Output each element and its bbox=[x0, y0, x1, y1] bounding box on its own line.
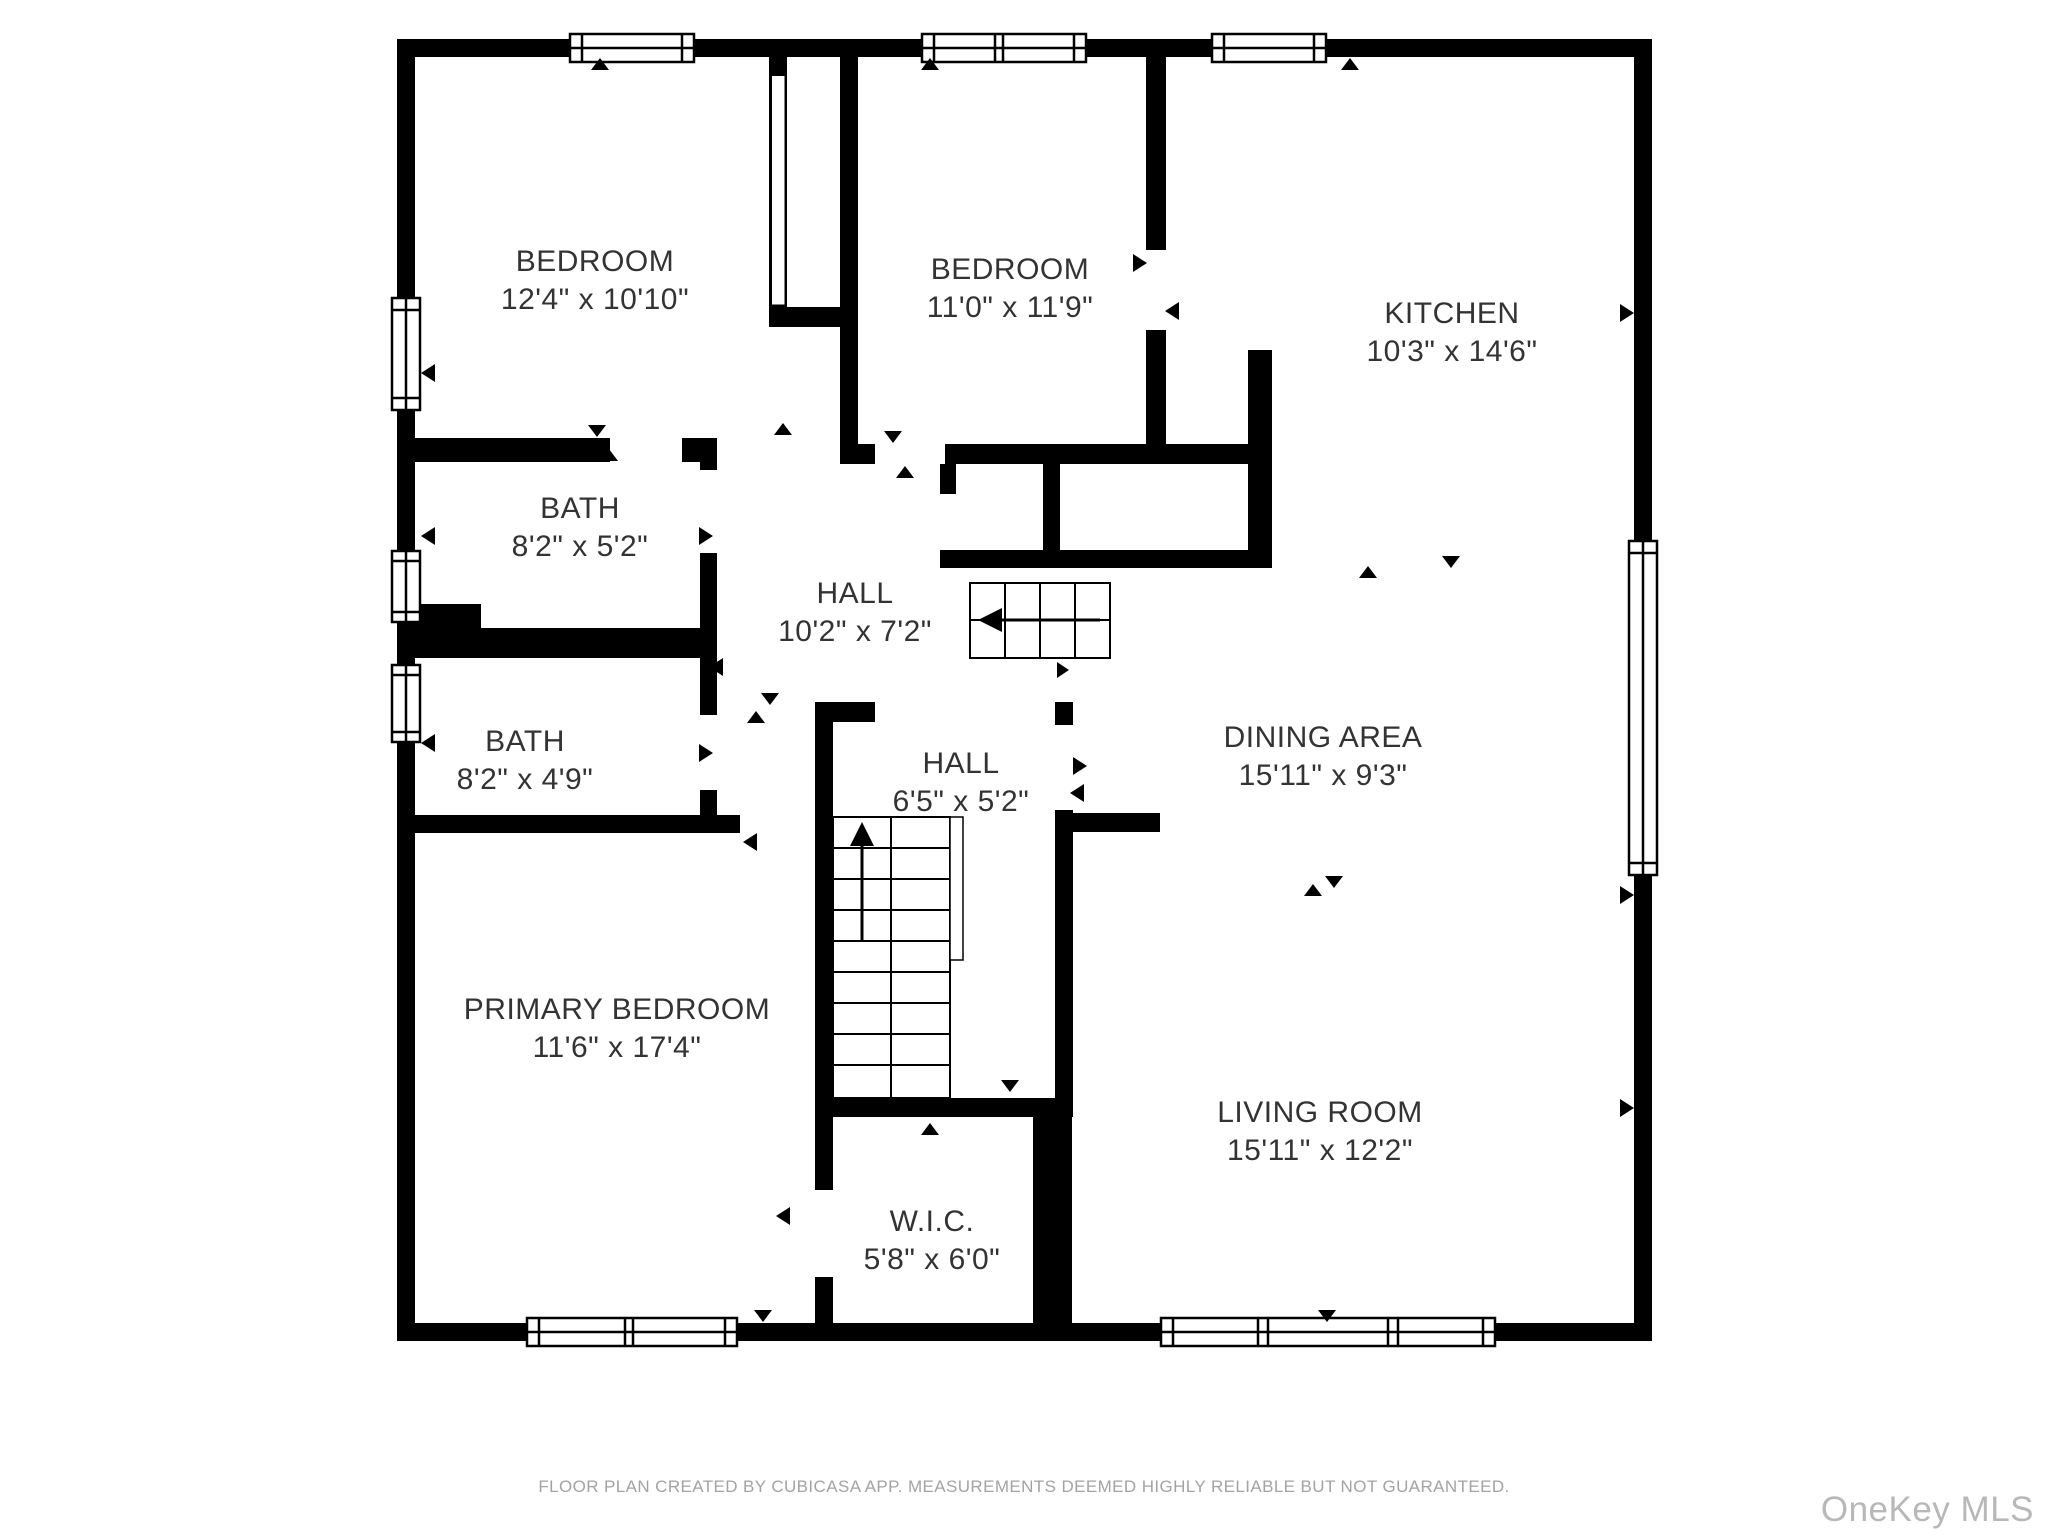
room-name: BEDROOM bbox=[501, 243, 689, 281]
windows bbox=[392, 34, 1657, 1346]
room-name: DINING AREA bbox=[1224, 719, 1423, 757]
window-living-room-bottom bbox=[1161, 1318, 1495, 1346]
window-dining-right bbox=[1629, 541, 1657, 875]
walls bbox=[397, 39, 1652, 1341]
room-label-bath-1: BATH 8'2" x 5'2" bbox=[512, 490, 649, 566]
room-dimensions: 11'6" x 17'4" bbox=[464, 1029, 770, 1067]
room-name: HALL bbox=[778, 575, 932, 613]
room-name: W.I.C. bbox=[864, 1203, 1001, 1241]
room-label-living-room: LIVING ROOM 15'11" x 12'2" bbox=[1217, 1094, 1423, 1170]
room-label-bedroom-2: BEDROOM 11'0" x 11'9" bbox=[927, 251, 1094, 327]
room-name: HALL bbox=[893, 745, 1030, 783]
room-label-bath-2: BATH 8'2" x 4'9" bbox=[457, 723, 594, 799]
window-bath-1-left bbox=[392, 551, 420, 622]
room-name: PRIMARY BEDROOM bbox=[464, 991, 770, 1029]
room-name: LIVING ROOM bbox=[1217, 1094, 1423, 1132]
window-kitchen-top bbox=[1212, 34, 1326, 62]
room-name: BEDROOM bbox=[927, 251, 1094, 289]
room-label-bedroom-1: BEDROOM 12'4" x 10'10" bbox=[501, 243, 689, 319]
window-bedroom-1-top bbox=[570, 34, 694, 62]
room-dimensions: 12'4" x 10'10" bbox=[501, 281, 689, 319]
staircase-main bbox=[833, 817, 963, 1098]
room-name: BATH bbox=[457, 723, 594, 761]
window-primary-bedroom-bottom bbox=[527, 1318, 737, 1346]
room-name: BATH bbox=[512, 490, 649, 528]
room-label-hall-2: HALL 6'5" x 5'2" bbox=[893, 745, 1030, 821]
room-label-primary-bedroom: PRIMARY BEDROOM 11'6" x 17'4" bbox=[464, 991, 770, 1067]
window-bedroom-2-top bbox=[922, 34, 1086, 62]
staircase-small bbox=[970, 583, 1110, 678]
room-dimensions: 15'11" x 9'3" bbox=[1224, 757, 1423, 795]
room-label-wic: W.I.C. 5'8" x 6'0" bbox=[864, 1203, 1001, 1279]
room-dimensions: 8'2" x 5'2" bbox=[512, 528, 649, 566]
room-label-kitchen: KITCHEN 10'3" x 14'6" bbox=[1366, 295, 1537, 371]
sliding-door bbox=[771, 75, 785, 305]
room-dimensions: 6'5" x 5'2" bbox=[893, 783, 1030, 821]
floor-plan-page: BEDROOM 12'4" x 10'10" BEDROOM 11'0" x 1… bbox=[0, 0, 2048, 1536]
window-bath-2-left bbox=[392, 665, 420, 742]
watermark-onekey-mls: OneKey MLS bbox=[1821, 1490, 2034, 1530]
room-dimensions: 10'2" x 7'2" bbox=[778, 613, 932, 651]
room-label-dining-area: DINING AREA 15'11" x 9'3" bbox=[1224, 719, 1423, 795]
room-label-hall-1: HALL 10'2" x 7'2" bbox=[778, 575, 932, 651]
room-name: KITCHEN bbox=[1366, 295, 1537, 333]
room-dimensions: 8'2" x 4'9" bbox=[457, 761, 594, 799]
window-bedroom-1-left bbox=[392, 298, 420, 410]
room-dimensions: 10'3" x 14'6" bbox=[1366, 333, 1537, 371]
room-dimensions: 5'8" x 6'0" bbox=[864, 1241, 1001, 1279]
disclaimer-text: FLOOR PLAN CREATED BY CUBICASA APP. MEAS… bbox=[0, 1477, 2048, 1497]
room-dimensions: 11'0" x 11'9" bbox=[927, 289, 1094, 327]
room-dimensions: 15'11" x 12'2" bbox=[1217, 1132, 1423, 1170]
